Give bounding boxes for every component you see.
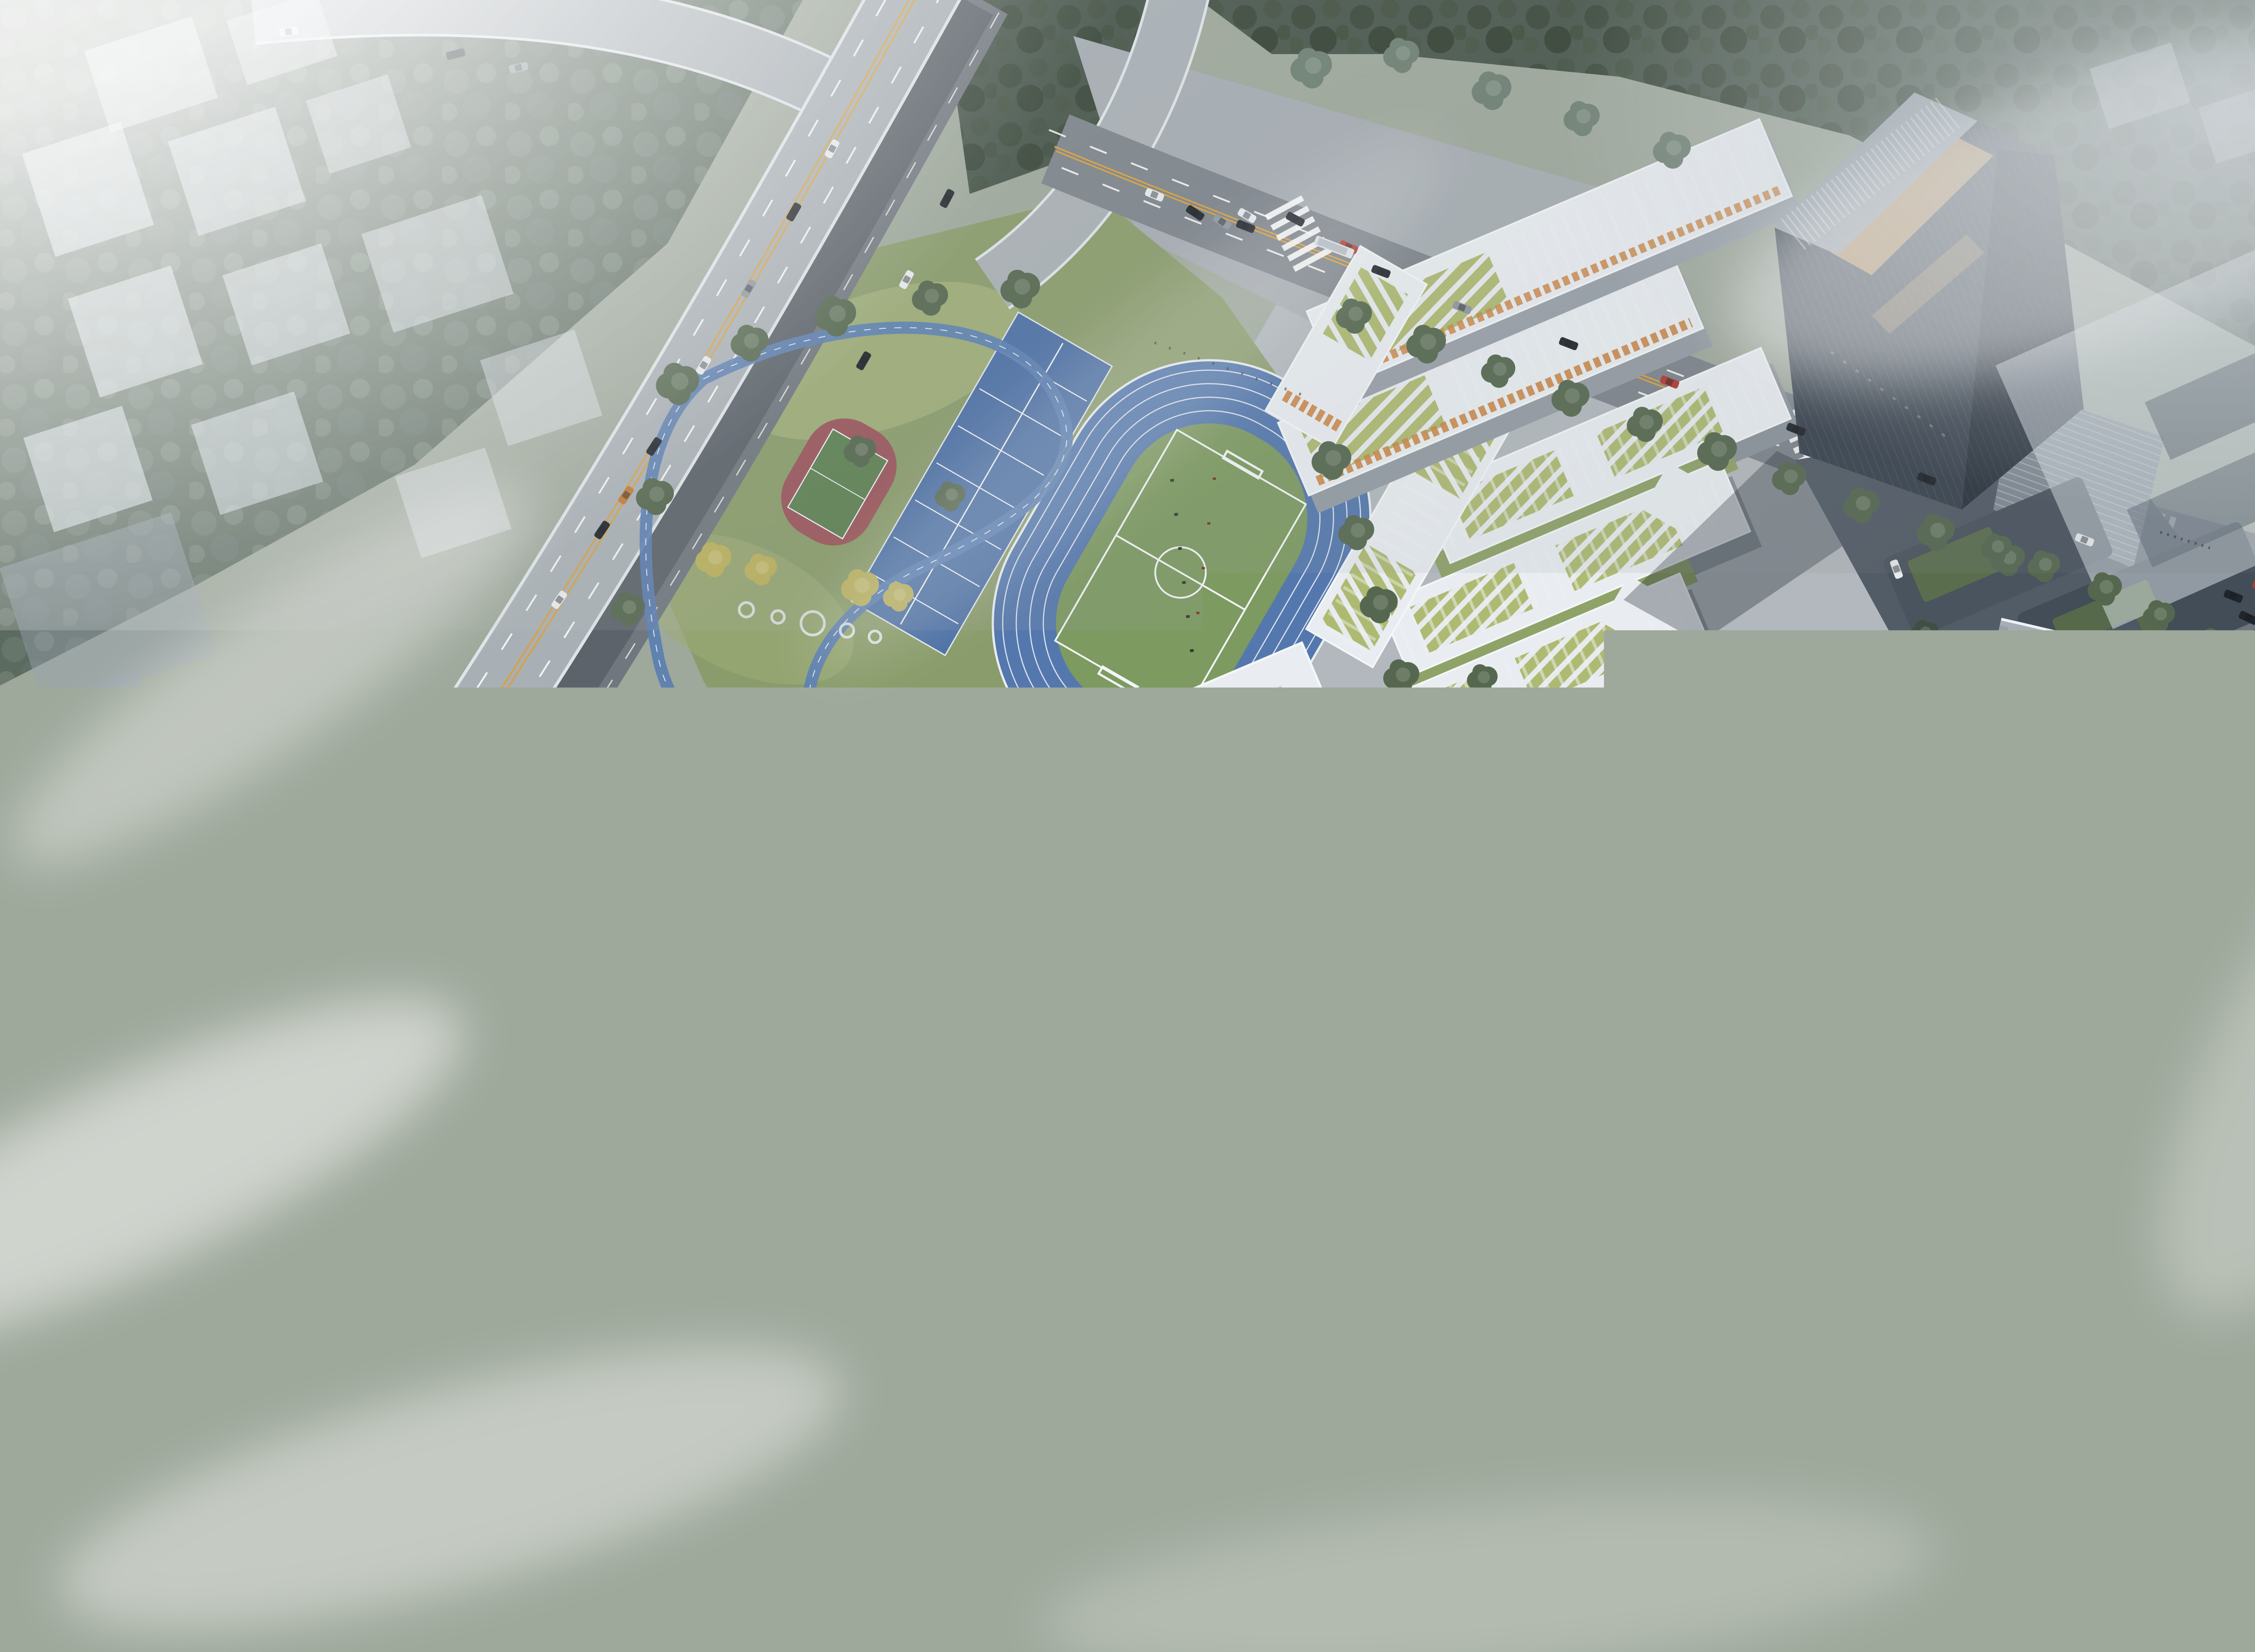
atmosphere bbox=[0, 0, 2255, 1652]
aerial-rendering-canvas: 實 温州市实验中学 bbox=[0, 0, 2255, 1652]
masterplan-rendering: 實 温州市实验中学 bbox=[0, 0, 2255, 1652]
global-tint bbox=[0, 0, 2255, 1652]
